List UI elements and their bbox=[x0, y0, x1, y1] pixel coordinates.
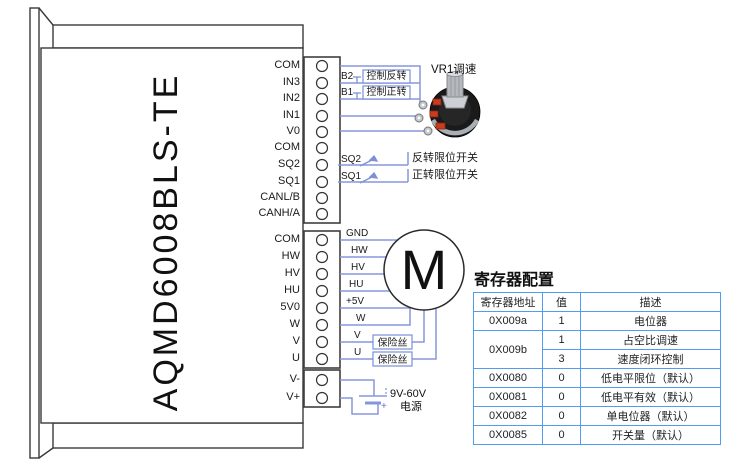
pin-label-sq2: SQ2 bbox=[248, 158, 300, 171]
pin-label-v0: V0 bbox=[248, 125, 300, 138]
col-header-desc: 描述 bbox=[581, 293, 721, 312]
cell-addr: 0X009b bbox=[474, 331, 543, 369]
register-table: 寄存器地址 值 描述 0X009a 1 电位器 0X009b 1 占空比调速 3… bbox=[473, 292, 721, 445]
heatsink-bottom-bar bbox=[53, 423, 303, 448]
cell-value: 0 bbox=[543, 426, 581, 445]
b2-pushbutton-icon bbox=[353, 77, 361, 83]
sq2-label: SQ2 bbox=[341, 154, 361, 166]
wire-label-gnd: GND bbox=[346, 228, 368, 240]
cell-addr: 0X0080 bbox=[474, 369, 543, 388]
cell-desc: 低电平有效（默认） bbox=[581, 388, 721, 407]
cell-addr: 0X0085 bbox=[474, 426, 543, 445]
cell-desc: 速度闭环控制 bbox=[581, 350, 721, 369]
power-label: 电源 bbox=[400, 401, 422, 414]
potentiometer-image bbox=[415, 72, 480, 138]
pin-label-vminus: V- bbox=[248, 373, 300, 386]
fuse-label-u: 保险丝 bbox=[374, 354, 411, 367]
table-row: 0X0082 0 单电位器（默认） bbox=[474, 407, 721, 426]
register-table-title: 寄存器配置 bbox=[474, 266, 554, 290]
wire-label-w: W bbox=[356, 313, 365, 325]
b2-action-label: 控制反转 bbox=[364, 71, 409, 83]
pin-label-5v0: 5V0 bbox=[248, 301, 300, 314]
wiring-diagram-page: AQMD6008BLS-TE COM IN3 IN2 IN1 V0 COM SQ… bbox=[0, 0, 750, 473]
b2-label: B2 bbox=[341, 71, 353, 83]
pot-terminal-red-2 bbox=[430, 111, 438, 117]
wire-label-v: V bbox=[354, 330, 361, 342]
pin-label-com3: COM bbox=[248, 233, 300, 246]
pot-bushing bbox=[442, 96, 468, 108]
wire-label-u: U bbox=[354, 347, 361, 359]
sq2-switch-arrow bbox=[370, 156, 377, 161]
table-header-row: 寄存器地址 值 描述 bbox=[474, 293, 721, 312]
wire-label-hu: HU bbox=[349, 279, 363, 291]
pin-label-canlb: CANL/B bbox=[248, 191, 300, 204]
b1-label: B1 bbox=[341, 87, 353, 99]
cell-value: 1 bbox=[543, 312, 581, 331]
table-row: 0X0081 0 低电平有效（默认） bbox=[474, 388, 721, 407]
pin-label-w: W bbox=[248, 318, 300, 331]
pin-label-in3: IN3 bbox=[248, 76, 300, 89]
pin-label-com2: COM bbox=[248, 141, 300, 154]
motor-symbol: M bbox=[392, 240, 456, 300]
pot-terminal-red-1 bbox=[433, 99, 441, 105]
cell-desc: 占空比调速 bbox=[581, 331, 721, 350]
cell-addr: 0X0081 bbox=[474, 388, 543, 407]
pin-label-canha: CANH/A bbox=[248, 207, 300, 220]
table-row: 0X009b 1 占空比调速 bbox=[474, 331, 721, 350]
cell-value: 0 bbox=[543, 407, 581, 426]
cell-desc: 电位器 bbox=[581, 312, 721, 331]
sq1-switch-arrow bbox=[370, 173, 377, 178]
pin-label-u: U bbox=[248, 352, 300, 365]
pin-label-in2: IN2 bbox=[248, 92, 300, 105]
col-header-address: 寄存器地址 bbox=[474, 293, 543, 312]
wire-label-5v: +5V bbox=[346, 296, 364, 308]
sq1-action-label: 正转限位开关 bbox=[412, 169, 478, 182]
table-row: 0X0080 0 低电平限位（默认） bbox=[474, 369, 721, 388]
wire-vminus bbox=[340, 380, 374, 396]
cell-desc: 单电位器（默认） bbox=[581, 407, 721, 426]
cell-value: 0 bbox=[543, 388, 581, 407]
vr1-label: VR1调速 bbox=[431, 61, 476, 77]
pin-label-vplus: V+ bbox=[248, 391, 300, 404]
power-plus-sign: + bbox=[381, 401, 387, 412]
top-bevel bbox=[39, 8, 53, 25]
wire-w bbox=[340, 308, 410, 325]
sq1-label: SQ1 bbox=[341, 171, 361, 183]
wire-vplus bbox=[340, 398, 378, 414]
pin-label-hv: HV bbox=[248, 267, 300, 280]
cell-addr: 0X0082 bbox=[474, 407, 543, 426]
bottom-bevel bbox=[39, 448, 53, 458]
power-range-label: 9V-60V bbox=[390, 388, 426, 401]
pin-label-sq1: SQ1 bbox=[248, 175, 300, 188]
cell-value: 0 bbox=[543, 369, 581, 388]
wire-label-hw: HW bbox=[351, 245, 368, 257]
pin-label-v: V bbox=[248, 335, 300, 348]
wire-label-hv: HV bbox=[351, 262, 365, 274]
b1-action-label: 控制正转 bbox=[364, 87, 409, 99]
cell-desc: 开关量（默认） bbox=[581, 426, 721, 445]
heatsink-flange bbox=[30, 8, 39, 458]
pot-terminal-red-3 bbox=[436, 123, 445, 129]
fuse-label-v: 保险丝 bbox=[374, 337, 411, 350]
b1-pushbutton-icon bbox=[353, 93, 361, 99]
cell-addr: 0X009a bbox=[474, 312, 543, 331]
cell-value: 1 bbox=[543, 331, 581, 350]
table-row: 0X0085 0 开关量（默认） bbox=[474, 426, 721, 445]
sq2-action-label: 反转限位开关 bbox=[412, 152, 478, 165]
device-model: AQMD6008BLS-TE bbox=[146, 64, 186, 420]
table-row: 0X009a 1 电位器 bbox=[474, 312, 721, 331]
pin-label-hw: HW bbox=[248, 250, 300, 263]
pin-label-in1: IN1 bbox=[248, 109, 300, 122]
cell-value: 3 bbox=[543, 350, 581, 369]
pin-label-hu: HU bbox=[248, 284, 300, 297]
heatsink-top-bar bbox=[53, 25, 303, 48]
col-header-value: 值 bbox=[543, 293, 581, 312]
pin-label-com1: COM bbox=[248, 59, 300, 72]
cell-desc: 低电平限位（默认） bbox=[581, 369, 721, 388]
